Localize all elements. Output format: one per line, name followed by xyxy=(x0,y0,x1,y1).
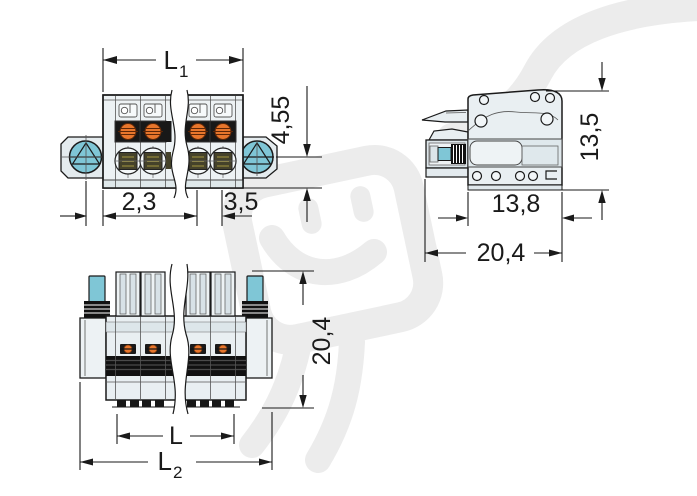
mounting-hole xyxy=(541,113,553,125)
dim-l1: L1 xyxy=(103,45,243,92)
dim-label-13-5: 13,5 xyxy=(576,113,604,162)
pole xyxy=(210,104,236,178)
flange-block-right xyxy=(246,318,272,378)
dim-label-l2: L2 xyxy=(158,446,183,482)
dim-label-13-8: 13,8 xyxy=(492,190,541,218)
screw-bottom-left xyxy=(84,276,110,318)
dim-l: L xyxy=(117,414,234,450)
mounting-hole xyxy=(492,172,501,181)
dim-label-2-3: 2,3 xyxy=(122,188,157,216)
pole xyxy=(115,104,141,178)
side-screw-assembly xyxy=(426,140,468,177)
technical-drawing: L1 4,55 2,3 3,5 xyxy=(0,0,697,496)
dim-label-3-5: 3,5 xyxy=(224,188,259,216)
logo-smile xyxy=(272,238,374,272)
mounting-hole xyxy=(475,115,487,127)
side-view: 13,5 13,8 20,4 xyxy=(422,62,609,267)
mounting-hole xyxy=(529,172,538,181)
front-view: L1 4,55 2,3 3,5 xyxy=(60,45,322,226)
flange-block-left xyxy=(80,318,106,378)
mounting-hole xyxy=(546,94,555,103)
dim-label-l1: L1 xyxy=(164,45,189,81)
mounting-hole xyxy=(516,172,525,181)
dim-label-20-4-bottom: 20,4 xyxy=(308,317,336,366)
dim-label-4-55: 4,55 xyxy=(267,96,295,145)
mounting-hole xyxy=(480,96,489,105)
locking-lever xyxy=(422,110,468,122)
side-housing xyxy=(468,90,562,190)
logo-eye-left xyxy=(296,196,323,235)
mounting-hole xyxy=(473,172,482,181)
watermark-plug-logo xyxy=(230,6,697,460)
logo-eye-right xyxy=(348,184,375,223)
dim-label-20-4-side: 20,4 xyxy=(477,239,526,267)
screw-shaft xyxy=(438,148,451,161)
connector-dimension-drawing: L1 4,55 2,3 3,5 xyxy=(0,0,697,496)
mounting-hole xyxy=(531,93,540,102)
screw-flange-left xyxy=(61,135,109,180)
pole xyxy=(140,104,166,178)
